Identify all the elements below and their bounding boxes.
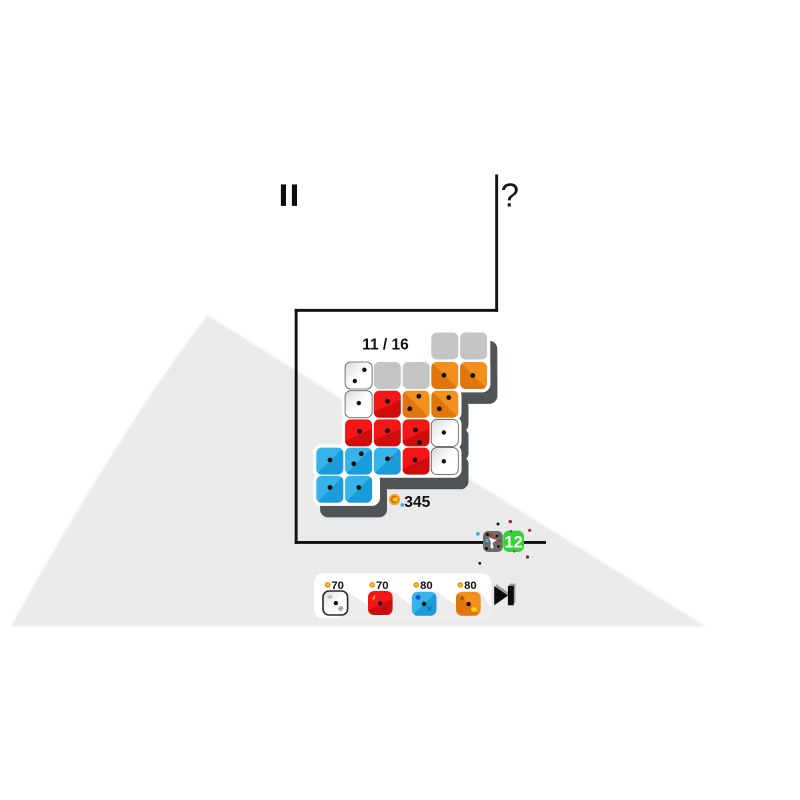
svg-text:345: 345 (404, 494, 430, 511)
svg-text:70: 70 (376, 580, 389, 592)
svg-text:11 / 16: 11 / 16 (362, 336, 409, 353)
svg-text:30: 30 (328, 594, 334, 599)
svg-text:70: 70 (331, 580, 344, 592)
svg-text:80: 80 (464, 580, 477, 592)
svg-text:?: ? (501, 177, 519, 214)
svg-text:80: 80 (420, 580, 433, 592)
svg-text:12: 12 (504, 534, 522, 552)
